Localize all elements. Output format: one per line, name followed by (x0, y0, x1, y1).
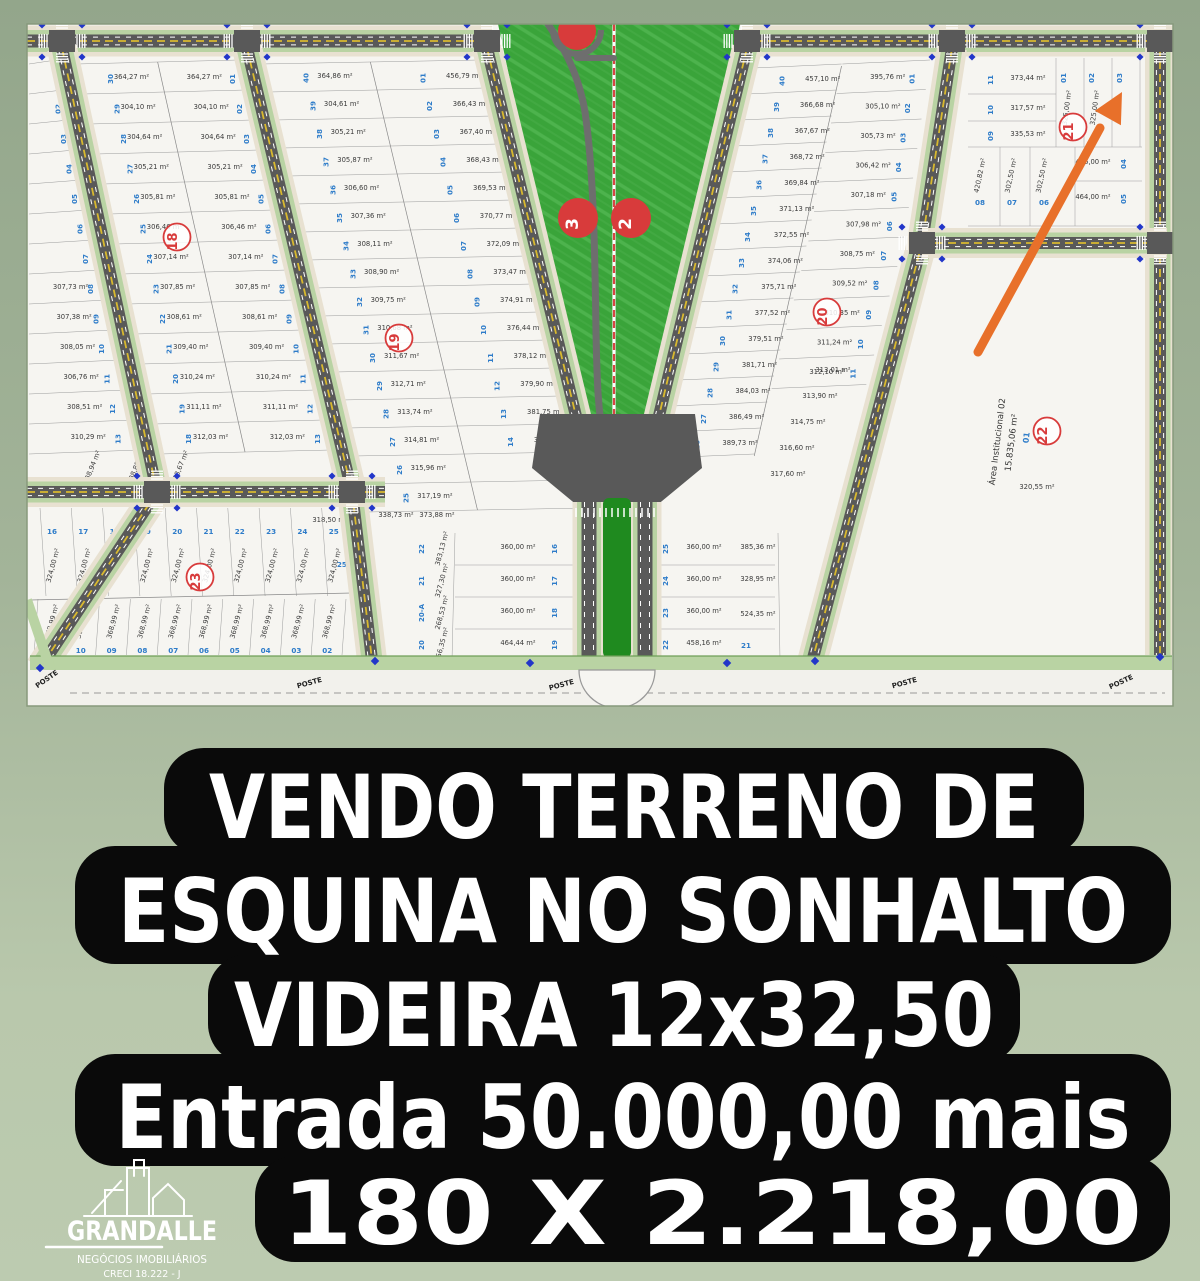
lot-number: 25 (661, 544, 670, 554)
lot-number: 27 (388, 437, 397, 447)
lot-area: 316,60 m² (779, 444, 815, 452)
lot-number: 39 (308, 101, 317, 111)
lot-number: 09 (986, 131, 995, 141)
lot-area: 381,71 m² (742, 361, 778, 369)
park-marker-label: 3 (563, 218, 583, 230)
lot-number: 17 (550, 576, 559, 586)
lot-number: 30 (718, 336, 727, 346)
lot-number: 20-A (418, 603, 426, 622)
lot-number: 08 (277, 284, 286, 294)
lot-area: 377,52 m² (755, 309, 791, 317)
lot-area: 308,61 m² (242, 313, 278, 321)
lot-area: 305,21 m² (134, 163, 170, 171)
lot-area: 360,00 m² (686, 543, 722, 551)
lot-area: 364,27 m² (114, 73, 150, 81)
lot-area: 317,60 m² (770, 470, 806, 478)
lot-number: 25 (401, 493, 410, 503)
lot-area: 306,46 m² (221, 223, 257, 231)
ad-line-3: VIDEIRA 12x32,50 (234, 964, 994, 1067)
lot-number: 05 (890, 192, 899, 202)
boulevard-median (603, 498, 631, 658)
lot-number: 03 (432, 129, 441, 139)
lot-area: 335,53 m² (1010, 130, 1046, 138)
lot-number: 11 (986, 75, 995, 85)
lot-number: 12 (306, 404, 315, 414)
quadra-marker-label: 19 (388, 333, 403, 351)
lot-number: 23 (266, 527, 276, 536)
lot-area: 456,79 m² (446, 72, 482, 80)
lot-area: 371,13 m² (779, 205, 815, 213)
ad-line-5: 180 X 2.218,00 (282, 1162, 1142, 1265)
lot-area: 307,14 m² (153, 253, 189, 261)
lot-number: 01 (1021, 431, 1031, 444)
lot-number: 30 (368, 353, 377, 363)
lot-area: 458,16 m² (686, 639, 722, 647)
lot-area: 306,42 m² (856, 161, 892, 169)
lot-area: 395,76 m² (870, 73, 906, 81)
lot-number: 05 (230, 646, 240, 655)
logo-subtitle: NEGÓCIOS IMOBILIÁRIOS (77, 1253, 207, 1266)
lot-number: 37 (760, 154, 769, 164)
park-marker (611, 198, 651, 238)
lot-area: 310,24 m² (256, 373, 292, 381)
brand-logo: GRANDALLE NEGÓCIOS IMOBILIÁRIOS CRECI 18… (46, 1160, 217, 1280)
lot-number: 31 (362, 325, 371, 335)
lot-area: 364,27 m² (187, 73, 223, 81)
lot-number: 01 (228, 74, 237, 84)
lot-number: 05 (256, 194, 265, 204)
lot-number: 32 (731, 284, 740, 294)
lot-number: 09 (107, 646, 117, 655)
quadra-marker-label: 22 (1036, 426, 1051, 444)
lot-area: 367,67 m² (795, 127, 831, 135)
ad-line-2: ESQUINA NO SONHALTO (118, 860, 1128, 963)
lot-area: 312,03 m² (193, 433, 229, 441)
boundary-strip (30, 656, 1172, 670)
lot-area: 307,14 m² (228, 253, 264, 261)
lot-area: 305,81 m² (214, 193, 250, 201)
lot-area: 317,19 m² (417, 492, 453, 500)
lot-area: 379,51 m² (748, 335, 784, 343)
lot-number: 24 (661, 576, 670, 586)
lot-number: 12 (108, 404, 117, 414)
lot-area: 309,40 m² (249, 343, 285, 351)
lot-area: 307,18 m² (851, 191, 887, 199)
lot-number: 07 (270, 254, 279, 264)
lot-area: 304,64 m² (127, 133, 163, 141)
lot-number: 18 (184, 434, 193, 444)
lot-number: 09 (92, 314, 101, 324)
lot-area: 311,67 m² (384, 352, 420, 360)
lot-number: 07 (81, 254, 90, 264)
lot-area: 370,77 m² (480, 212, 516, 220)
lot-number: 04 (261, 646, 271, 655)
lot-number: 09 (864, 310, 873, 320)
lot-area: 307,38 m² (56, 313, 92, 321)
lot-number: 40 (778, 76, 787, 86)
lot-area: 313,74 m² (397, 408, 433, 416)
lot-area: 464,00 m² (1075, 193, 1111, 201)
lot-area: 309,40 m² (173, 343, 209, 351)
lot-number: 07 (1007, 198, 1017, 207)
lot-number: 32 (355, 297, 364, 307)
lot-number: 14 (506, 437, 515, 447)
lot-number: 01 (1059, 73, 1068, 83)
lot-area: 374,06 m² (768, 257, 804, 265)
lot-number: 03 (242, 134, 251, 144)
lot-number: 22 (235, 527, 245, 536)
lot-area: 373,88 m² (419, 511, 455, 519)
corner-marker-icon (1176, 53, 1183, 60)
lot-area: 305,87 m² (337, 156, 373, 164)
lot-area: 304,10 m² (120, 103, 156, 111)
lot-number: 10 (97, 344, 106, 354)
lot-area: 338,73 m² (378, 511, 414, 519)
lot-area: 328,95 m² (740, 575, 776, 583)
lot-area: 457,10 m² (805, 75, 841, 83)
lot-number: 20 (418, 640, 426, 650)
lot-number: 31 (724, 310, 733, 320)
lot-area: 379,90 m² (520, 380, 556, 388)
lot-number: 16 (550, 544, 559, 554)
lot-number: 18 (550, 608, 559, 618)
flyer: 02030405060708307,73 m²09307,38 m²10308,… (0, 0, 1200, 1281)
logo-creci: CRECI 18.222 - J (103, 1269, 180, 1280)
lot-number: 21 (418, 576, 426, 586)
lot-number: 02 (235, 104, 244, 114)
quadra-marker-label: 18 (166, 232, 181, 250)
lot-number: 19 (550, 640, 559, 650)
lot-area: 307,73 m² (53, 283, 89, 291)
lot-number: 38 (766, 128, 775, 138)
park-marker (558, 198, 598, 238)
lot-number: 02 (1087, 73, 1096, 83)
lot-number: 10 (479, 325, 488, 335)
lot-number: 27 (699, 414, 708, 424)
lot-area: 372,09 m² (487, 240, 523, 248)
lot-number: 08 (975, 198, 985, 207)
lot-area: 312,71 m² (391, 380, 427, 388)
logo-name: GRANDALLE (67, 1216, 217, 1247)
ad-line-4: Entrada 50.000,00 mais (116, 1066, 1131, 1169)
lot-area: 309,75 m² (371, 296, 407, 304)
lot-number: 34 (743, 232, 752, 242)
lot-area: 320,55 m² (1019, 483, 1055, 491)
lot-number: 03 (1115, 73, 1124, 83)
lot-number: 03 (898, 133, 907, 143)
lot-area: 386,49 m² (729, 413, 765, 421)
lot-area: 305,73 m² (860, 132, 896, 140)
lot-number: 26 (395, 465, 404, 475)
lot-area: 376,44 m² (507, 324, 543, 332)
lot-area: 368,43 m² (466, 156, 502, 164)
lot-area: 360,00 m² (500, 607, 536, 615)
lot-area: 364,86 m² (317, 72, 353, 80)
lot-area: 307,85 m² (235, 283, 271, 291)
lot-number: 08 (466, 269, 475, 279)
lot-number: 20 (172, 527, 182, 536)
lot-number: 35 (749, 206, 758, 216)
lot-area: 305,10 m² (865, 102, 901, 110)
lot-number: 21 (203, 527, 213, 536)
lot-area: 384,03 m² (735, 387, 771, 395)
lot-number: 06 (199, 646, 209, 655)
lot-area: 317,57 m² (1010, 104, 1046, 112)
lot-number: 19 (177, 404, 186, 414)
lot-area: 309,52 m² (832, 279, 868, 287)
lot-area: 464,44 m² (500, 639, 536, 647)
lot-area: 368,72 m² (789, 153, 825, 161)
lot-number: 02 (322, 646, 332, 655)
lot-area: 308,51 m² (67, 403, 103, 411)
lot-area: 304,61 m² (324, 100, 360, 108)
lot-number: 09 (285, 314, 294, 324)
park-marker-label: 2 (616, 218, 636, 230)
lot-number: 12 (492, 381, 501, 391)
lot-area: 304,10 m² (194, 103, 230, 111)
lot-area: 373,47 m² (493, 268, 529, 276)
lot-number: 10 (76, 646, 86, 655)
lot-area: 314,81 m² (404, 436, 440, 444)
lot-area: 304,64 m² (201, 133, 237, 141)
lot-area: 385,36 m² (740, 543, 776, 551)
lot-number: 17 (78, 527, 88, 536)
lot-number: 01 (907, 74, 916, 84)
lot-area: 308,75 m² (840, 250, 876, 258)
lot-number: 07 (168, 646, 178, 655)
lot-area: 313,90 m² (802, 392, 838, 400)
lot-area: 369,84 m² (784, 179, 820, 187)
lot-number: 36 (328, 185, 337, 195)
lot-area: 524,35 m² (740, 610, 776, 618)
lot-area: 360,00 m² (500, 543, 536, 551)
lot-number: 28 (382, 409, 391, 419)
lot-area: 308,90 m² (364, 268, 400, 276)
lot-number: 01 (418, 73, 427, 83)
lot-number: 13 (313, 434, 322, 444)
lot-area: 305,21 m² (331, 128, 367, 136)
corner-marker-icon (1176, 223, 1183, 230)
lot-area: 374,91 m² (500, 296, 536, 304)
lot-area: 366,43 m² (453, 100, 489, 108)
lot-area: 311,11 m² (186, 403, 222, 411)
lot-number: 06 (885, 221, 894, 231)
lot-number: 22 (661, 640, 670, 650)
lot-number: 24 (297, 527, 307, 536)
lot-number: 28 (705, 388, 714, 398)
lot-area: 308,05 m² (60, 343, 96, 351)
lot-number: 02 (425, 101, 434, 111)
lot-number: 13 (114, 434, 123, 444)
lot-area: 310,29 m² (71, 433, 107, 441)
lot-number: 08 (137, 646, 147, 655)
lot-number: 07 (879, 251, 888, 261)
flyer-canvas: 02030405060708307,73 m²09307,38 m²10308,… (0, 0, 1200, 1281)
quadra-marker-label: 20 (816, 307, 831, 325)
lot-area: 315,96 m² (411, 464, 447, 472)
lot-number: 06 (452, 213, 461, 223)
lot-number: 33 (348, 269, 357, 279)
lot-number: 03 (291, 646, 301, 655)
lot-area: 369,53 m² (473, 184, 509, 192)
lot-number: 02 (903, 103, 912, 113)
lot-area: 360,00 m² (686, 575, 722, 583)
lot-number: 10 (856, 339, 865, 349)
lot-area: 311,24 m² (817, 338, 853, 346)
lot-area: 366,68 m² (800, 101, 836, 109)
lot-number: 06 (1039, 198, 1049, 207)
lot-number: 22 (418, 544, 426, 554)
lot-number: 33 (737, 258, 746, 268)
park-marker (558, 12, 596, 50)
lot-number: 11 (103, 374, 112, 384)
lot-number: 38 (315, 129, 324, 139)
lot-number: 08 (872, 280, 881, 290)
lot-area: 375,71 m² (761, 283, 797, 291)
lot-number: 10 (986, 105, 995, 115)
lot-number: 35 (335, 213, 344, 223)
quadra-marker-label: 23 (189, 572, 204, 590)
lot-number: 07 (459, 241, 468, 251)
lot-number: 05 (1119, 194, 1128, 204)
lot-area: 360,00 m² (500, 575, 536, 583)
lot-number: 20 (171, 374, 180, 384)
lot-number: 04 (1119, 159, 1128, 169)
lot-number: 40 (302, 73, 311, 83)
lot-number: 23 (661, 608, 670, 618)
lot-number: 39 (772, 102, 781, 112)
lot-number: 09 (472, 297, 481, 307)
lot-number: 05 (70, 194, 79, 204)
lot-area: 378,12 m² (514, 352, 550, 360)
lot-area: 312,03 m² (270, 433, 306, 441)
lot-number: 25 (329, 527, 339, 536)
lot-number: 21 (741, 641, 751, 650)
lot-area: 306,76 m² (64, 373, 100, 381)
lot-area: 307,36 m² (351, 212, 387, 220)
ad-text-panel: VENDO TERRENO DE ESQUINA NO SONHALTO VID… (75, 748, 1171, 1265)
lot-number: 29 (375, 381, 384, 391)
lot-area: 308,11 m² (357, 240, 393, 248)
lot-number: 21 (164, 344, 173, 354)
lot-number: 05 (445, 185, 454, 195)
lot-number: 29 (712, 362, 721, 372)
lot-number: 36 (755, 180, 764, 190)
lot-number: 11 (486, 353, 495, 363)
lot-area: 307,85 m² (160, 283, 196, 291)
lot-number: 37 (322, 157, 331, 167)
lot-number: 13 (499, 409, 508, 419)
lot-area: 367,40 m² (459, 128, 495, 136)
lot-area: 305,81 m² (140, 193, 176, 201)
lot-area: 311,11 m² (263, 403, 299, 411)
lot-area: 307,98 m² (846, 220, 882, 228)
lot-area: 360,00 m² (686, 607, 722, 615)
lot-number: 11 (299, 374, 308, 384)
lot-number: 16 (47, 527, 57, 536)
ad-line-1: VENDO TERRENO DE (209, 756, 1039, 859)
lot-area: 305,21 m² (207, 163, 243, 171)
corner-marker-icon (1176, 255, 1183, 262)
lot-number: 34 (342, 241, 351, 251)
lot-area: 308,61 m² (167, 313, 203, 321)
lot-number: 06 (75, 224, 84, 234)
lot-number: 06 (263, 224, 272, 234)
lot-number: 10 (292, 344, 301, 354)
lot-number: 04 (249, 164, 258, 174)
lot-number: 04 (439, 157, 448, 167)
lot-area: 389,73 m² (722, 439, 758, 447)
lot-number: 04 (894, 162, 903, 172)
plat-map: 02030405060708307,73 m²09307,38 m²10308,… (27, 12, 1184, 708)
lot-area: 372,55 m² (774, 231, 810, 239)
quadra-marker-label: 21 (1062, 122, 1077, 140)
corner-marker-icon (1176, 21, 1183, 28)
lot-area: 310,24 m² (180, 373, 216, 381)
lot-area: 306,60 m² (344, 184, 380, 192)
lot-area: 373,44 m² (1010, 74, 1046, 82)
lot-area: 313,01 m² (815, 366, 851, 374)
lot-area: 314,75 m² (790, 418, 826, 426)
